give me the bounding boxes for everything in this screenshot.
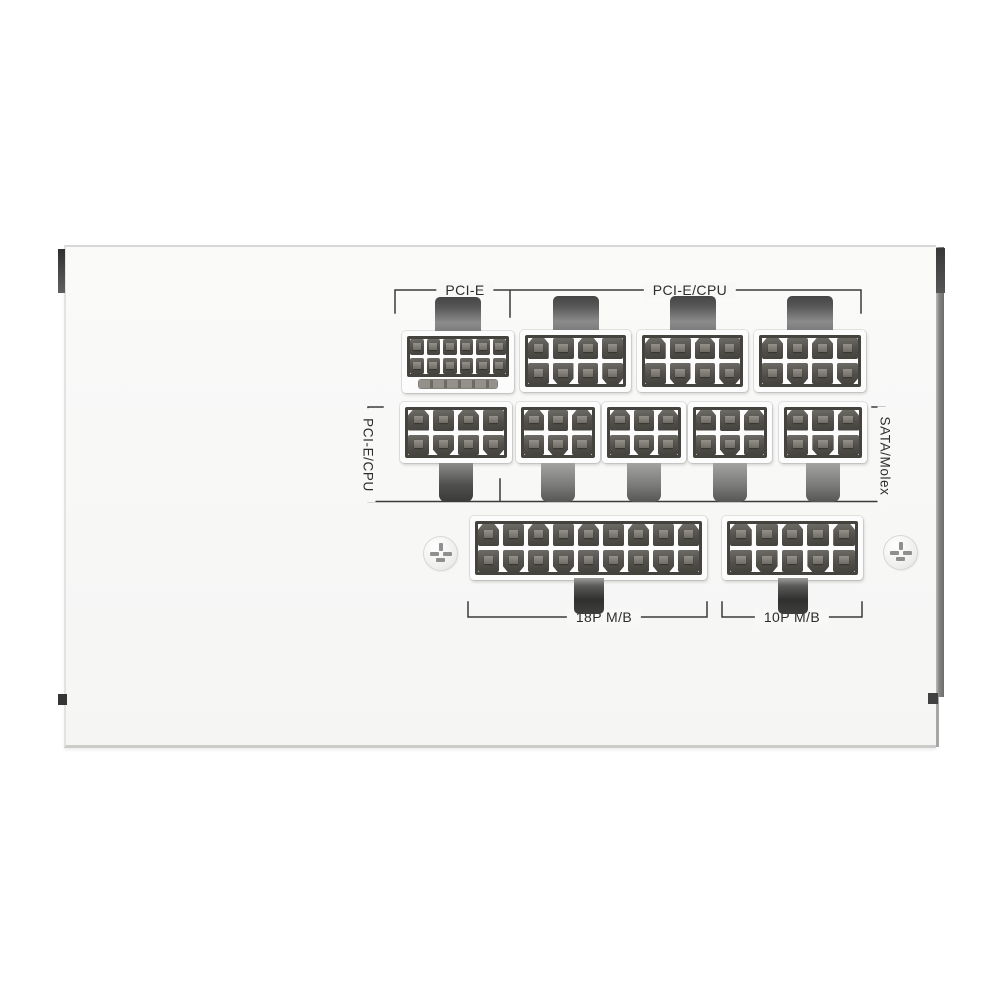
cable-clip-tab [806,463,840,502]
pin-socket [410,358,424,374]
pin-socket [838,435,859,456]
pin-socket [696,435,716,456]
pin-socket [782,524,804,546]
pin-socket [833,550,855,572]
mounting-tab-top-left [58,249,65,293]
pin-socket [476,339,490,355]
pin-socket [720,410,740,431]
pin-socket [603,524,624,546]
pin-socket [719,338,740,359]
pin-socket [553,550,574,572]
pin-socket [807,524,829,546]
pin-socket [812,435,833,456]
screw-head-left-icon [424,537,457,570]
pin-socket [572,435,592,456]
cable-clip-tab [778,578,808,614]
pin-socket [807,550,829,572]
pin-socket [553,338,574,359]
cable-clip-tab [435,297,481,331]
pin-socket [478,550,499,572]
connector-sata-molex-6pin-4 [779,402,867,463]
pin-socket [548,435,568,456]
connector-pcie-cpu-8pin-4 [400,402,512,463]
pin-socket [670,338,691,359]
label-sata-molex: SATA/Molex [878,406,893,505]
pin-socket [427,339,441,355]
pin-socket [528,338,549,359]
pin-socket [787,338,808,359]
mounting-notch-bottom-right [928,693,938,704]
mounting-tab-top-right [936,248,945,293]
cable-clip-tab [574,578,604,614]
pin-socket [730,550,752,572]
pin-socket [578,363,599,384]
pin-socket [634,410,654,431]
pin-socket [838,410,859,431]
pin-socket [427,358,441,374]
pin-socket [645,338,666,359]
pin-socket [524,435,544,456]
pin-socket [720,435,740,456]
pin-socket [610,435,630,456]
cable-clip-tab [627,463,661,502]
pin-socket [833,524,855,546]
connector-10p-motherboard [722,516,863,580]
pin-socket [548,410,568,431]
pin-socket [458,410,479,431]
mounting-notch-bottom-left [58,694,67,705]
pin-socket [670,363,691,384]
pin-socket [602,363,623,384]
pin-socket [695,363,716,384]
pin-socket [744,410,764,431]
pin-socket [578,338,599,359]
pin-socket [658,410,678,431]
cable-clip-tab [439,463,473,502]
connector-pcie-cpu-8pin-3 [754,330,866,392]
connector-pcie-cpu-8pin-2 [637,330,748,392]
connector-sata-molex-6pin-3 [688,402,772,463]
pin-socket [503,550,524,572]
pin-socket [653,524,674,546]
pin-socket [553,524,574,546]
pin-socket [528,363,549,384]
pin-socket [483,410,504,431]
pin-socket [730,524,752,546]
cable-clip-tab [541,463,575,502]
pin-socket [787,363,808,384]
pin-socket [812,363,833,384]
connector-pcie-12pin [402,331,514,393]
pin-socket [645,363,666,384]
screw-head-right-icon [884,536,917,569]
pin-socket [553,363,574,384]
pin-socket [756,524,778,546]
pin-socket [678,550,699,572]
pin-socket [476,358,490,374]
panel-edge-strip-right [936,247,944,697]
pin-socket [696,410,716,431]
label-pcie-cpu-side: PCI-E/CPU [361,408,376,502]
cable-clip-tab [787,296,833,330]
connector-18p-motherboard [470,516,707,580]
pin-socket [460,339,474,355]
pin-socket [408,435,429,456]
pin-socket [483,435,504,456]
pin-socket [458,435,479,456]
pin-socket [653,550,674,572]
pin-socket [837,338,858,359]
pin-socket [460,358,474,374]
pin-socket [678,524,699,546]
pin-socket [524,410,544,431]
pin-socket [695,338,716,359]
pin-socket [628,524,649,546]
pin-socket [443,339,457,355]
pin-socket [782,550,804,572]
pin-socket [812,338,833,359]
label-pcie: PCI-E [436,282,493,298]
sense-pin-slot [419,380,497,388]
cable-clip-tab [713,463,747,502]
psu-product-image: PCI-E PCI-E/CPU PCI-E/CPU SATA/Molex 18P… [0,0,1000,1000]
pin-socket [433,435,454,456]
pin-socket [493,339,507,355]
pin-socket [756,550,778,572]
pin-socket [578,550,599,572]
pin-socket [744,435,764,456]
pin-socket [478,524,499,546]
pin-socket [602,338,623,359]
pin-socket [837,363,858,384]
pin-socket [787,435,808,456]
pin-socket [408,410,429,431]
pin-socket [528,550,549,572]
pin-socket [610,410,630,431]
panel-edge-strip-right-lower [936,697,939,747]
pin-socket [528,524,549,546]
pin-socket [603,550,624,572]
pin-socket [762,363,783,384]
pin-socket [762,338,783,359]
pin-socket [493,358,507,374]
pin-socket [812,410,833,431]
pin-socket [503,524,524,546]
pin-socket [787,410,808,431]
connector-sata-molex-6pin-1 [516,402,600,463]
pin-socket [443,358,457,374]
pin-socket [578,524,599,546]
pin-socket [658,435,678,456]
connector-pcie-cpu-8pin-1 [520,330,631,392]
pin-socket [433,410,454,431]
cable-clip-tab [670,296,716,330]
connector-sata-molex-6pin-2 [602,402,686,463]
cable-clip-tab [553,296,599,330]
pin-socket [410,339,424,355]
pin-socket [719,363,740,384]
pin-socket [628,550,649,572]
pin-socket [634,435,654,456]
pin-socket [572,410,592,431]
